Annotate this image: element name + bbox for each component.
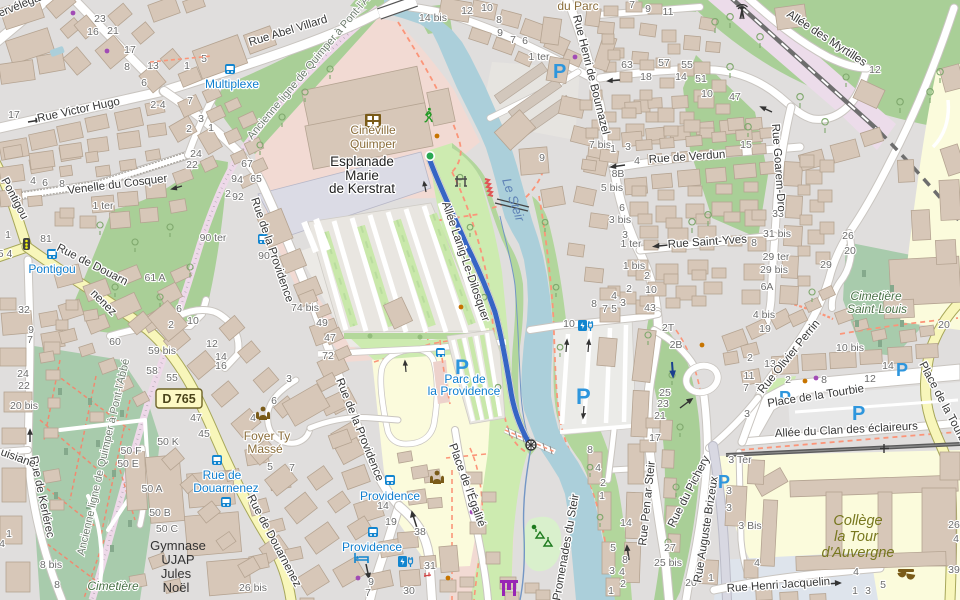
svg-text:6: 6	[141, 77, 147, 89]
svg-text:4: 4	[619, 566, 625, 578]
svg-text:7: 7	[187, 95, 193, 107]
svg-text:26: 26	[842, 230, 854, 242]
svg-text:6: 6	[271, 395, 277, 407]
svg-text:63: 63	[621, 59, 633, 71]
svg-text:6: 6	[619, 202, 625, 214]
svg-text:Pontigou: Pontigou	[28, 262, 75, 276]
svg-text:8: 8	[59, 178, 65, 190]
svg-text:1: 1	[852, 585, 858, 597]
svg-text:49: 49	[316, 317, 328, 329]
svg-text:10: 10	[645, 284, 657, 296]
svg-text:2: 2	[644, 270, 650, 282]
svg-text:8: 8	[591, 298, 597, 310]
svg-text:3: 3	[744, 408, 750, 420]
svg-text:Cinéville: Cinéville	[350, 123, 396, 137]
svg-text:12: 12	[864, 373, 876, 385]
svg-text:18: 18	[640, 71, 652, 83]
svg-text:50 B: 50 B	[149, 507, 171, 519]
svg-text:10 bis: 10 bis	[836, 342, 864, 354]
svg-text:8B: 8B	[612, 168, 625, 180]
svg-text:58: 58	[146, 365, 158, 377]
svg-text:Cimetière: Cimetière	[850, 289, 902, 303]
svg-text:17: 17	[649, 432, 661, 444]
svg-text:6: 6	[522, 35, 528, 47]
svg-text:20: 20	[844, 245, 856, 257]
svg-text:11: 11	[663, 6, 674, 18]
svg-text:7: 7	[365, 587, 371, 599]
svg-text:15: 15	[740, 139, 752, 151]
svg-text:11: 11	[744, 370, 755, 382]
svg-text:7 bis: 7 bis	[589, 139, 611, 151]
svg-text:92: 92	[232, 191, 244, 203]
svg-text:23: 23	[94, 13, 106, 25]
svg-text:19: 19	[385, 516, 397, 528]
svg-text:1: 1	[608, 585, 614, 597]
svg-text:67: 67	[241, 158, 253, 170]
svg-text:39: 39	[948, 564, 960, 576]
svg-text:Gymnase: Gymnase	[150, 538, 206, 553]
svg-text:65: 65	[250, 173, 262, 185]
svg-text:7: 7	[510, 34, 516, 46]
svg-text:57: 57	[658, 57, 670, 69]
svg-text:10: 10	[701, 88, 713, 100]
svg-text:8: 8	[587, 444, 593, 456]
svg-text:47: 47	[324, 332, 336, 344]
svg-text:8: 8	[54, 579, 60, 591]
svg-text:2: 2	[785, 374, 791, 386]
svg-text:du Parc: du Parc	[557, 0, 598, 13]
svg-text:55: 55	[166, 372, 178, 384]
svg-text:22: 22	[186, 159, 198, 171]
svg-text:5 bis: 5 bis	[601, 182, 623, 194]
svg-text:Saint-Louis: Saint-Louis	[847, 302, 907, 316]
svg-text:1 ter: 1 ter	[620, 238, 642, 250]
svg-text:2: 2	[186, 123, 192, 135]
svg-text:20 bis: 20 bis	[10, 400, 38, 412]
svg-text:8: 8	[821, 374, 827, 386]
svg-text:4: 4	[250, 412, 256, 424]
svg-text:2-4: 2-4	[150, 99, 165, 111]
svg-text:51: 51	[695, 73, 707, 85]
svg-text:P: P	[553, 61, 566, 83]
svg-text:74 bis: 74 bis	[291, 302, 319, 314]
svg-text:29 ter: 29 ter	[763, 251, 790, 263]
svg-text:3: 3	[726, 502, 732, 514]
svg-text:43: 43	[644, 302, 656, 314]
svg-text:16: 16	[87, 26, 99, 38]
svg-text:20: 20	[938, 319, 950, 331]
svg-text:8: 8	[496, 14, 502, 26]
svg-text:P: P	[576, 384, 591, 409]
svg-text:Cimetière: Cimetière	[87, 579, 139, 593]
svg-text:21: 21	[107, 25, 119, 37]
svg-text:1: 1	[599, 490, 605, 502]
svg-text:4: 4	[595, 462, 601, 474]
svg-text:4 bis: 4 bis	[753, 309, 775, 321]
svg-text:4: 4	[953, 533, 959, 545]
svg-text:6: 6	[42, 177, 48, 189]
svg-text:3: 3	[609, 565, 615, 577]
svg-text:Rue de: Rue de	[203, 468, 242, 482]
svg-text:1: 1	[708, 572, 714, 584]
svg-text:Multiplexe: Multiplexe	[205, 77, 259, 91]
svg-text:Massé: Massé	[247, 442, 283, 456]
svg-text:de Kerstrat: de Kerstrat	[329, 181, 395, 196]
svg-text:9: 9	[497, 27, 503, 39]
svg-text:la Providence: la Providence	[428, 384, 501, 398]
svg-text:17: 17	[8, 109, 20, 121]
svg-text:29: 29	[820, 259, 832, 271]
svg-text:3: 3	[286, 373, 292, 385]
svg-text:72: 72	[322, 350, 334, 362]
svg-text:3: 3	[620, 297, 626, 309]
svg-text:P: P	[896, 360, 908, 380]
svg-text:7: 7	[743, 382, 749, 394]
svg-text:3 Bis: 3 Bis	[738, 520, 761, 532]
svg-text:1 ter: 1 ter	[92, 200, 114, 212]
svg-text:3: 3	[726, 485, 732, 497]
svg-text:50 F: 50 F	[120, 445, 141, 457]
svg-text:2: 2	[626, 283, 632, 295]
svg-text:12: 12	[461, 5, 473, 17]
svg-text:5: 5	[880, 579, 886, 591]
svg-text:38: 38	[414, 526, 426, 538]
svg-text:2: 2	[225, 188, 231, 200]
svg-text:26: 26	[948, 519, 960, 531]
svg-text:50 C: 50 C	[156, 523, 179, 535]
svg-text:4: 4	[30, 175, 36, 187]
svg-text:4: 4	[853, 566, 859, 578]
svg-text:31: 31	[424, 560, 436, 572]
svg-text:12: 12	[869, 64, 881, 76]
svg-text:4: 4	[611, 290, 617, 302]
svg-text:31 bis: 31 bis	[763, 228, 791, 240]
svg-text:9: 9	[645, 3, 651, 15]
svg-text:3: 3	[198, 113, 204, 125]
svg-text:8 bis: 8 bis	[40, 559, 62, 571]
svg-text:Douarnenez: Douarnenez	[193, 481, 258, 495]
svg-text:14: 14	[675, 71, 687, 83]
svg-text:9: 9	[539, 152, 545, 164]
svg-text:UJAP: UJAP	[161, 552, 194, 567]
svg-text:55: 55	[681, 59, 693, 71]
svg-text:la Tour: la Tour	[834, 529, 879, 545]
svg-text:81: 81	[40, 233, 52, 245]
svg-text:3 Ter: 3 Ter	[728, 454, 752, 466]
svg-text:5 4: 5 4	[0, 248, 12, 260]
svg-text:22: 22	[18, 380, 30, 392]
svg-text:21: 21	[654, 410, 666, 422]
svg-text:14 bis: 14 bis	[419, 12, 447, 24]
svg-text:10: 10	[187, 315, 199, 327]
svg-text:P: P	[852, 403, 865, 425]
svg-text:47: 47	[729, 91, 741, 103]
svg-text:1 ter: 1 ter	[528, 51, 550, 63]
svg-text:1: 1	[184, 60, 190, 72]
svg-text:25 bis: 25 bis	[654, 557, 682, 569]
svg-text:Providence: Providence	[360, 489, 420, 503]
svg-text:7: 7	[602, 303, 608, 315]
svg-text:4: 4	[0, 538, 5, 550]
svg-text:1: 1	[610, 143, 616, 155]
svg-text:60: 60	[109, 336, 121, 348]
svg-text:1: 1	[6, 528, 12, 540]
svg-text:6A: 6A	[761, 281, 774, 293]
svg-text:D 765: D 765	[162, 392, 195, 406]
svg-text:50 A: 50 A	[141, 483, 162, 495]
svg-text:3: 3	[865, 585, 871, 597]
svg-text:2: 2	[620, 578, 626, 590]
svg-text:4: 4	[634, 155, 640, 167]
svg-text:5: 5	[610, 542, 616, 554]
svg-text:d'Auvergne: d'Auvergne	[822, 545, 895, 561]
svg-text:2: 2	[600, 477, 606, 489]
svg-text:2: 2	[747, 352, 753, 364]
svg-text:23: 23	[657, 398, 669, 410]
svg-text:47: 47	[190, 412, 202, 424]
svg-text:Foyer Ty: Foyer Ty	[244, 429, 290, 443]
svg-text:Collège: Collège	[833, 513, 882, 529]
svg-text:5: 5	[201, 53, 207, 65]
svg-text:Esplanade: Esplanade	[330, 154, 394, 169]
svg-text:50 K: 50 K	[157, 436, 179, 448]
svg-text:1: 1	[5, 229, 11, 241]
svg-text:7: 7	[289, 462, 295, 474]
svg-text:1 bis: 1 bis	[623, 260, 645, 272]
svg-text:16: 16	[215, 360, 227, 372]
svg-text:1: 1	[208, 122, 214, 134]
svg-text:10: 10	[563, 318, 575, 330]
svg-text:7: 7	[629, 0, 635, 11]
svg-text:19: 19	[759, 323, 771, 335]
svg-text:14: 14	[882, 360, 894, 372]
svg-text:5: 5	[267, 461, 273, 473]
svg-text:2: 2	[168, 319, 174, 331]
svg-text:Quimper: Quimper	[350, 137, 396, 151]
svg-text:26 bis: 26 bis	[239, 582, 267, 594]
svg-text:7: 7	[27, 334, 33, 346]
svg-text:90 ter: 90 ter	[200, 232, 227, 244]
svg-text:17: 17	[124, 44, 136, 56]
svg-text:Providence: Providence	[342, 540, 402, 554]
svg-text:8: 8	[751, 237, 757, 249]
svg-text:24: 24	[17, 368, 29, 380]
svg-text:50 E: 50 E	[117, 458, 139, 470]
svg-text:45: 45	[198, 428, 210, 440]
svg-text:12: 12	[206, 338, 218, 350]
svg-text:5: 5	[611, 303, 617, 315]
svg-text:3: 3	[625, 141, 631, 153]
svg-text:61 A: 61 A	[144, 272, 165, 284]
svg-text:59 bis: 59 bis	[148, 345, 176, 357]
svg-text:14: 14	[620, 517, 632, 529]
svg-text:2B: 2B	[670, 339, 683, 351]
svg-text:Jules: Jules	[161, 566, 192, 581]
svg-text:10: 10	[481, 2, 493, 14]
svg-text:29 bis: 29 bis	[760, 264, 788, 276]
svg-text:Noël: Noël	[163, 580, 190, 595]
svg-text:8: 8	[622, 554, 628, 566]
svg-text:27: 27	[664, 542, 676, 554]
svg-text:6: 6	[176, 303, 182, 315]
svg-text:32: 32	[18, 304, 30, 316]
svg-text:8: 8	[124, 61, 130, 73]
svg-text:30: 30	[403, 585, 415, 597]
svg-text:2T: 2T	[662, 322, 675, 334]
svg-text:4: 4	[754, 557, 760, 569]
svg-text:3 bis: 3 bis	[609, 214, 631, 226]
svg-text:4: 4	[237, 174, 243, 186]
